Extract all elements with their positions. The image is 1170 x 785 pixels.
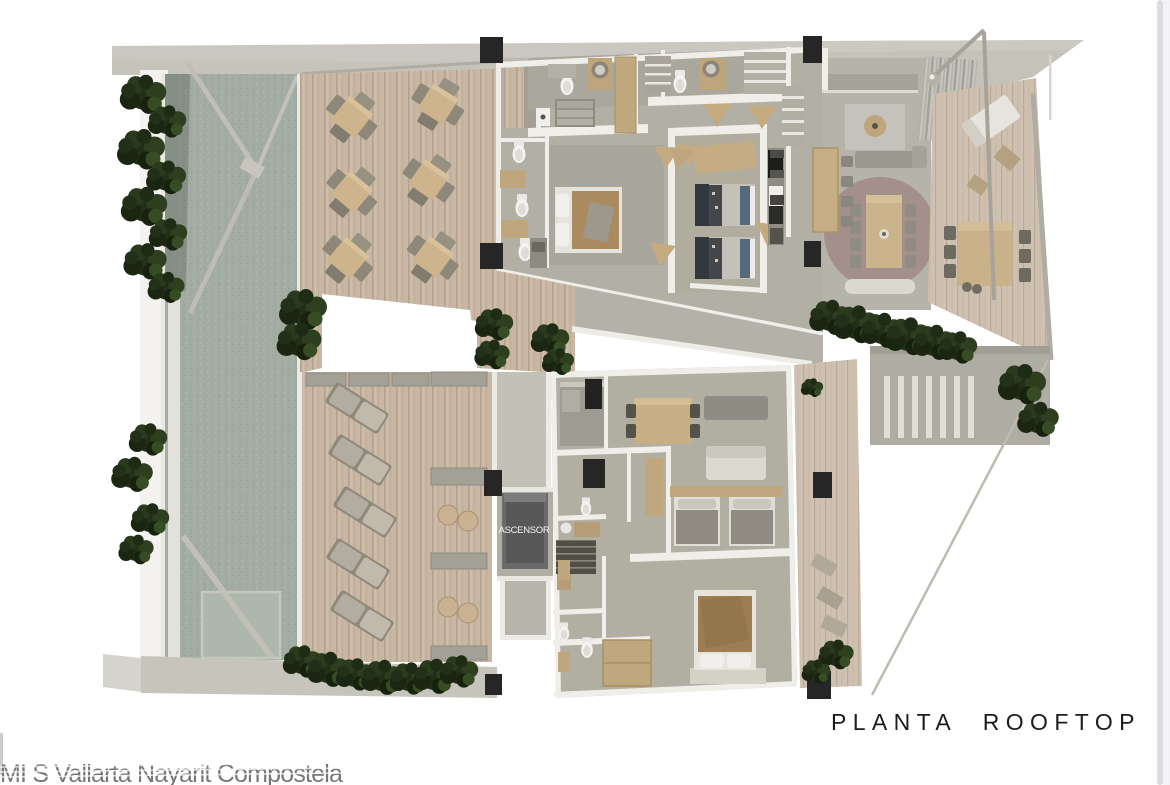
svg-text:ASCENSOR: ASCENSOR <box>499 525 550 536</box>
svg-text:PLANTA ROOFTOP: PLANTA ROOFTOP <box>831 709 1141 735</box>
